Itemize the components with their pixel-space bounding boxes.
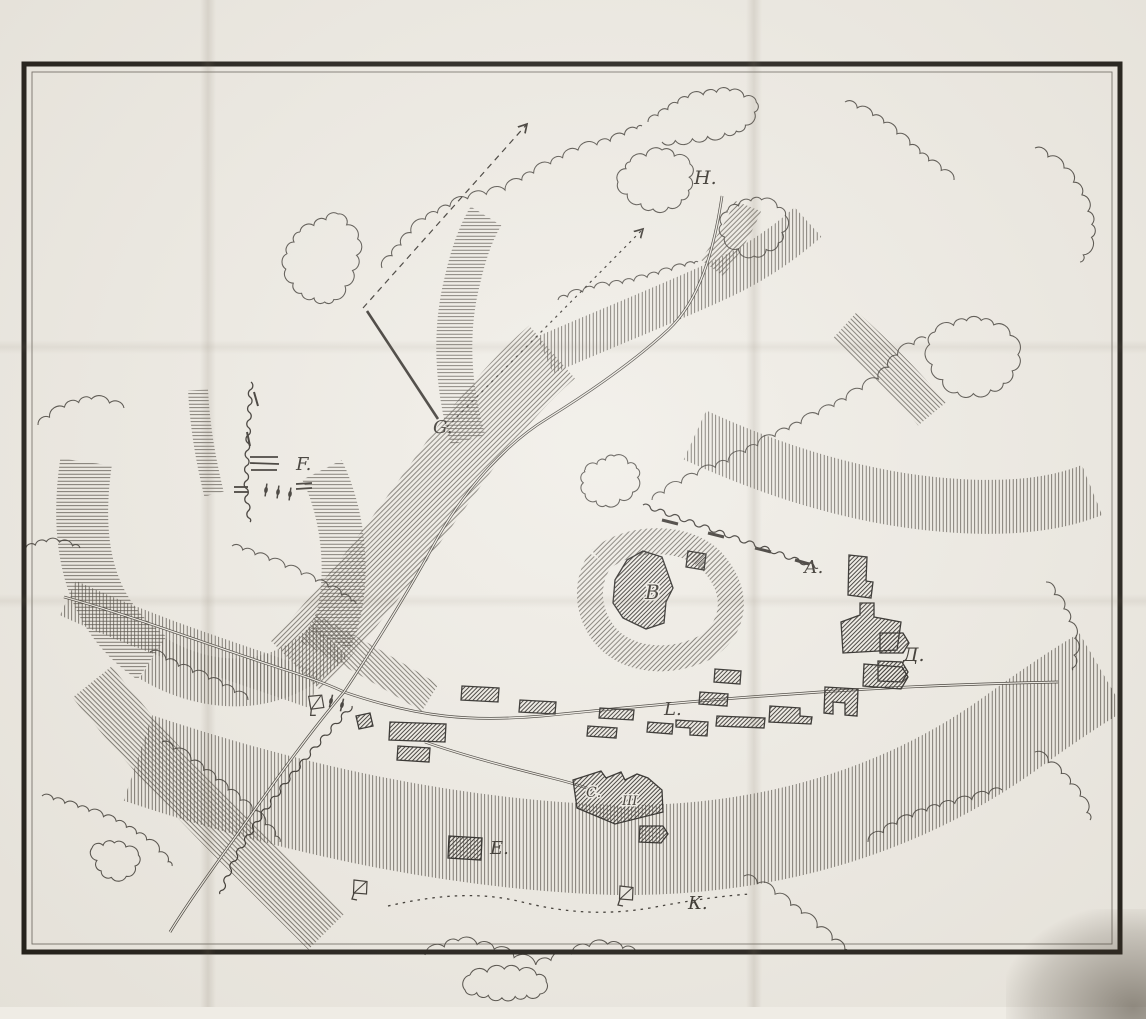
map-marker-0: Н.	[693, 167, 717, 189]
building	[686, 551, 706, 570]
building	[587, 726, 617, 738]
map-marker-8: III	[621, 794, 638, 809]
map-marker-1: G.	[433, 417, 452, 438]
building	[448, 836, 482, 860]
map-marker-4: В	[644, 580, 660, 604]
building	[389, 722, 446, 742]
building	[639, 826, 668, 843]
map-canvas: Н.G.F.А.ВД.L.С.IIIЕ.К.	[0, 0, 1146, 1007]
building	[699, 692, 728, 706]
building	[599, 708, 634, 720]
building	[716, 716, 765, 728]
building	[714, 669, 741, 684]
building	[519, 700, 556, 714]
map-marker-10: К.	[687, 893, 708, 914]
map-page: Изъ дневника Барона Л. П. Николаи. Къ ст…	[0, 0, 1146, 1007]
building	[356, 713, 373, 729]
building	[461, 686, 499, 702]
map-marker-6: L.	[663, 699, 682, 720]
map-marker-5: Д.	[902, 644, 925, 666]
building	[863, 664, 908, 689]
map-marker-7: С.	[586, 785, 601, 801]
map-marker-9: Е.	[489, 838, 509, 859]
map-marker-3: А.	[802, 557, 823, 578]
building	[647, 722, 673, 734]
building	[397, 746, 430, 762]
map-marker-2: F.	[295, 454, 311, 475]
